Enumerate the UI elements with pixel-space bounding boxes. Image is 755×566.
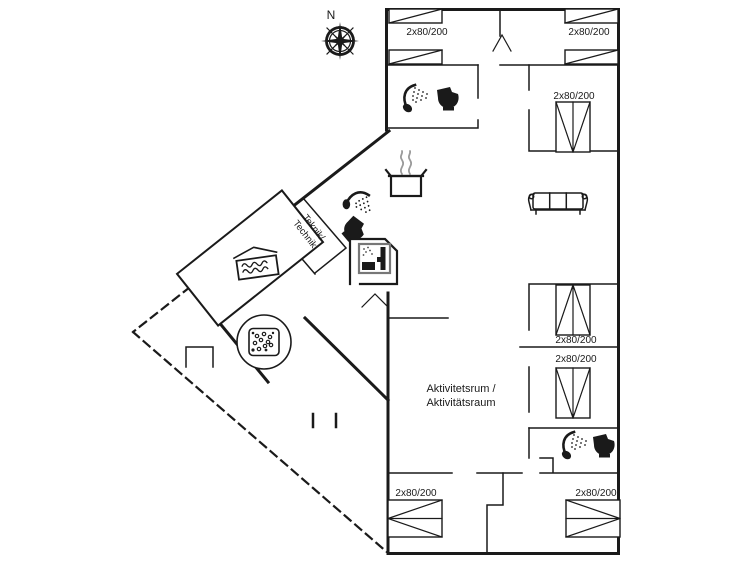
activity-room-label-line1: Aktivitetsrum / [426,382,495,396]
sauna-icon [359,244,390,273]
toilet-icon [593,434,615,458]
bed-size-label: 2x80/200 [395,488,436,500]
steam-icon [409,151,411,174]
steam-icon [401,151,403,174]
bunk-bed-icon [556,368,590,418]
bed-size-label: 2x80/200 [406,27,447,39]
bunk-bed-icon [388,500,442,537]
bed-size-label: 2x80/200 [553,91,594,103]
floor-plan-drawing [0,0,755,566]
door-swing-icon [493,35,511,51]
activity-room-label: Aktivitetsrum / Aktivitätsraum [426,382,495,410]
single-bed-icon [389,9,442,23]
cooking-pot-icon [386,151,426,196]
sofa-icon [529,193,588,214]
north-label: N [327,9,336,21]
bed-size-label: 2x80/200 [575,488,616,500]
shower-icon [401,85,428,114]
bed-size-label: 2x80/200 [555,335,596,347]
bunk-bed-icon [556,102,590,152]
bunk-bed-icon [566,500,620,537]
single-bed-icon [565,50,618,64]
shower-icon [560,432,587,461]
bed-size-label: 2x80/200 [555,354,596,366]
door-swing-icon [362,294,388,307]
shower-icon [338,185,377,224]
terrace-step-mark [186,347,213,367]
pool-room [177,190,323,325]
whirlpool-tub [237,315,291,369]
toilet-icon [338,214,370,246]
terrace-post-marks [313,414,336,427]
bed-size-label: 2x80/200 [568,27,609,39]
compass-rose-icon [321,22,359,60]
floor-plan: N 2x80/200 2x80/200 2x80/200 2x80/200 2x… [0,0,755,566]
bunk-bed-icon [556,285,590,335]
single-bed-icon [389,50,442,64]
toilet-icon [437,87,459,111]
single-bed-icon [565,9,618,23]
activity-room-label-line2: Aktivitätsraum [426,396,495,410]
